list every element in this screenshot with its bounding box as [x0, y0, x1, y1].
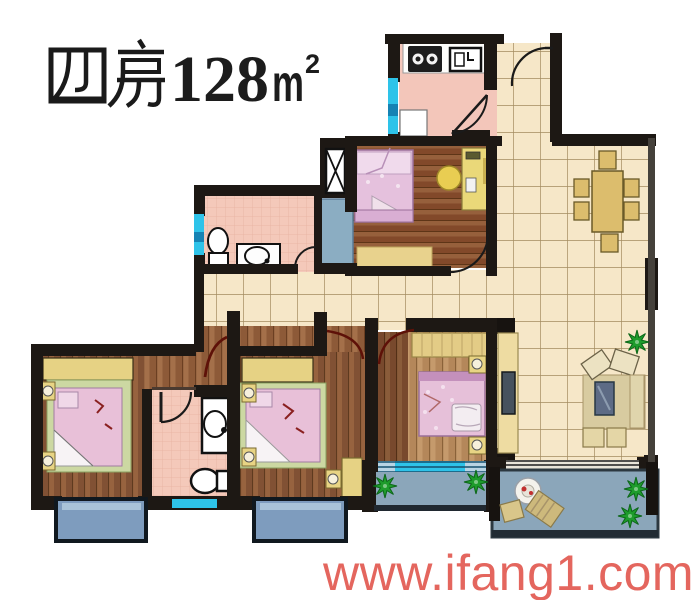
svg-text:2: 2 [305, 49, 320, 79]
svg-text:m: m [272, 55, 304, 113]
svg-text:www.ifang1.com: www.ifang1.com [322, 545, 694, 600]
svg-text:128: 128 [170, 43, 269, 116]
